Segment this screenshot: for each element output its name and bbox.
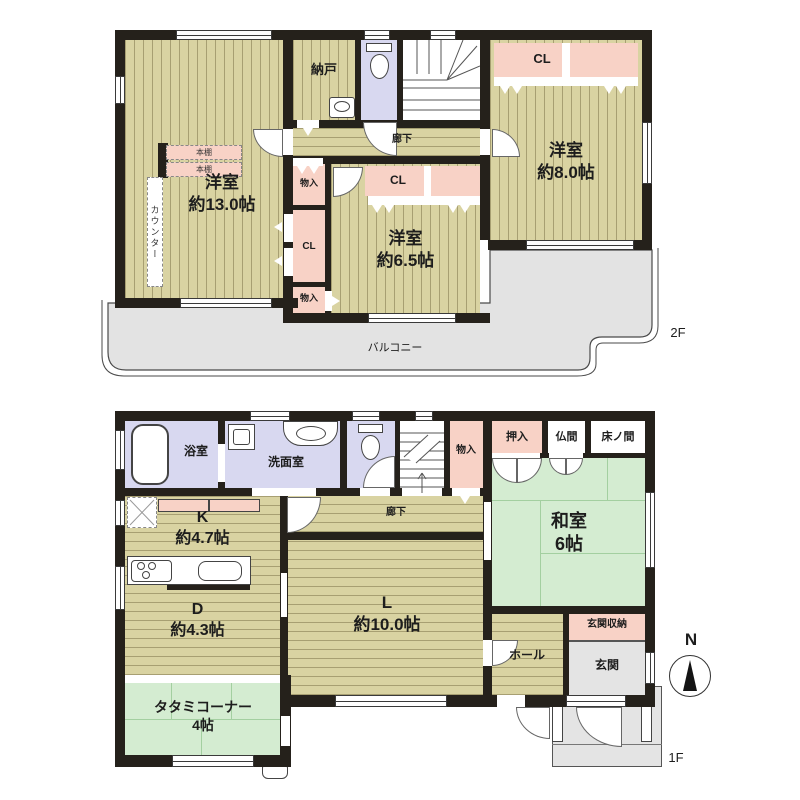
room-label: 物入 bbox=[446, 444, 486, 457]
stove-burner-icon bbox=[137, 562, 145, 570]
window bbox=[368, 313, 456, 323]
window bbox=[364, 30, 390, 40]
wall bbox=[293, 282, 325, 287]
wall bbox=[115, 30, 125, 308]
wall bbox=[355, 40, 361, 120]
window bbox=[335, 695, 447, 707]
room-label: CL bbox=[512, 51, 572, 68]
entrance-sliding-door bbox=[566, 695, 626, 707]
room-label: タタミコーナー4帖 bbox=[127, 698, 279, 734]
room-label: 物入 bbox=[291, 178, 327, 190]
room-label: 納戸 bbox=[294, 62, 354, 79]
wall bbox=[293, 205, 325, 210]
sliding-door bbox=[128, 675, 246, 683]
room-label: K約4.7帖 bbox=[135, 508, 270, 550]
vanity-bowl-icon bbox=[296, 426, 326, 441]
door-swing-mark bbox=[616, 86, 626, 94]
folding-door bbox=[284, 214, 293, 242]
sliding-door bbox=[484, 502, 491, 560]
door-swing-mark bbox=[274, 222, 282, 232]
room-label: 和室6帖 bbox=[510, 510, 628, 557]
door-swing-mark bbox=[297, 166, 307, 174]
room-label: 床ノ間 bbox=[589, 430, 647, 444]
room-label: L約10.0帖 bbox=[312, 592, 462, 636]
wall bbox=[563, 614, 569, 695]
genkan-side-door bbox=[645, 652, 655, 684]
window bbox=[115, 500, 125, 526]
door-swing-mark bbox=[332, 296, 340, 306]
closet-doors bbox=[368, 196, 480, 205]
toilet-tank-icon bbox=[358, 424, 383, 433]
bathtub-icon bbox=[131, 424, 169, 485]
hand-basin-bowl-icon bbox=[334, 101, 350, 112]
tatami-line bbox=[492, 500, 645, 501]
window bbox=[352, 411, 380, 421]
window bbox=[180, 298, 272, 308]
closet-divider bbox=[424, 166, 431, 196]
door-opening bbox=[483, 640, 492, 666]
room-label: D約4.3帖 bbox=[130, 600, 265, 642]
door-swing-mark bbox=[303, 128, 313, 136]
balcony-label: バルコニー bbox=[350, 341, 440, 355]
door-swing-mark bbox=[372, 205, 382, 213]
room-label: 洋室約8.0帖 bbox=[496, 140, 636, 184]
stairs-icon bbox=[400, 421, 444, 496]
window bbox=[115, 76, 125, 104]
window bbox=[172, 755, 254, 767]
sliding-door bbox=[281, 573, 287, 617]
bookshelf: 本棚 bbox=[166, 145, 242, 160]
window bbox=[430, 30, 456, 40]
toilet-tank-icon bbox=[366, 43, 392, 52]
stove-burner-icon bbox=[142, 571, 150, 579]
window bbox=[115, 430, 125, 470]
room-label: 浴室 bbox=[168, 444, 224, 460]
north-arrow-icon bbox=[683, 660, 697, 691]
tatami-line bbox=[607, 458, 608, 500]
window bbox=[526, 240, 634, 250]
floor-tag-1f: 1F bbox=[662, 750, 690, 767]
door-swing-mark bbox=[500, 86, 510, 94]
kitchen-sink-icon bbox=[198, 561, 242, 581]
window bbox=[415, 411, 433, 421]
window bbox=[645, 492, 655, 568]
closet-doors bbox=[494, 77, 638, 86]
room-label: 廊下 bbox=[378, 133, 426, 146]
door-opening bbox=[283, 129, 293, 155]
window bbox=[115, 566, 125, 610]
door-opening bbox=[497, 695, 525, 707]
floor-tag-2f: 2F bbox=[664, 325, 692, 342]
stairs-icon bbox=[403, 40, 480, 120]
room-label: 洋室約13.0帖 bbox=[152, 172, 292, 216]
door-swing-mark bbox=[274, 256, 282, 266]
room-label: 押入 bbox=[492, 430, 542, 444]
room-label: 玄関収納 bbox=[570, 618, 644, 631]
window bbox=[250, 411, 290, 421]
room-label: CL bbox=[291, 240, 327, 253]
room-label: 廊下 bbox=[370, 506, 422, 519]
room-label: 玄関 bbox=[582, 658, 632, 674]
window bbox=[176, 30, 272, 40]
room-label: ホール bbox=[498, 648, 556, 664]
washing-machine-drum-icon bbox=[233, 429, 250, 445]
wall bbox=[340, 421, 347, 488]
door-opening bbox=[452, 488, 480, 496]
north-label: N bbox=[679, 629, 703, 651]
door-opening bbox=[360, 488, 390, 496]
room-toilet-2f bbox=[361, 40, 397, 120]
room-label: 仏間 bbox=[548, 430, 585, 444]
wall bbox=[115, 411, 655, 421]
window bbox=[642, 122, 652, 184]
door-swing-mark bbox=[460, 205, 470, 213]
sliding-door bbox=[281, 716, 290, 746]
room-label: CL bbox=[372, 173, 424, 189]
floor-plan-page: 本棚 本棚 カウンター 納戸 廊下 物入 CL 物入 CL CL 洋室約13.0… bbox=[0, 0, 800, 800]
door-swing-mark bbox=[448, 205, 458, 213]
door-swing-mark bbox=[604, 86, 614, 94]
room-label: 物入 bbox=[291, 293, 327, 305]
door-swing-mark bbox=[384, 205, 394, 213]
door-arc bbox=[516, 707, 550, 739]
door-swing-mark bbox=[309, 166, 319, 174]
door-swing-mark bbox=[460, 496, 470, 504]
room-label: 洋室約6.5帖 bbox=[338, 228, 473, 272]
wall bbox=[444, 421, 450, 496]
wall bbox=[483, 606, 645, 614]
stove-burner-icon bbox=[148, 562, 156, 570]
door-opening bbox=[297, 120, 319, 128]
door-opening bbox=[480, 129, 490, 155]
folding-door bbox=[293, 158, 323, 166]
room-label: 洗面室 bbox=[250, 455, 322, 471]
folding-door bbox=[252, 488, 316, 496]
door-swing-mark bbox=[512, 86, 522, 94]
wall bbox=[288, 532, 483, 540]
